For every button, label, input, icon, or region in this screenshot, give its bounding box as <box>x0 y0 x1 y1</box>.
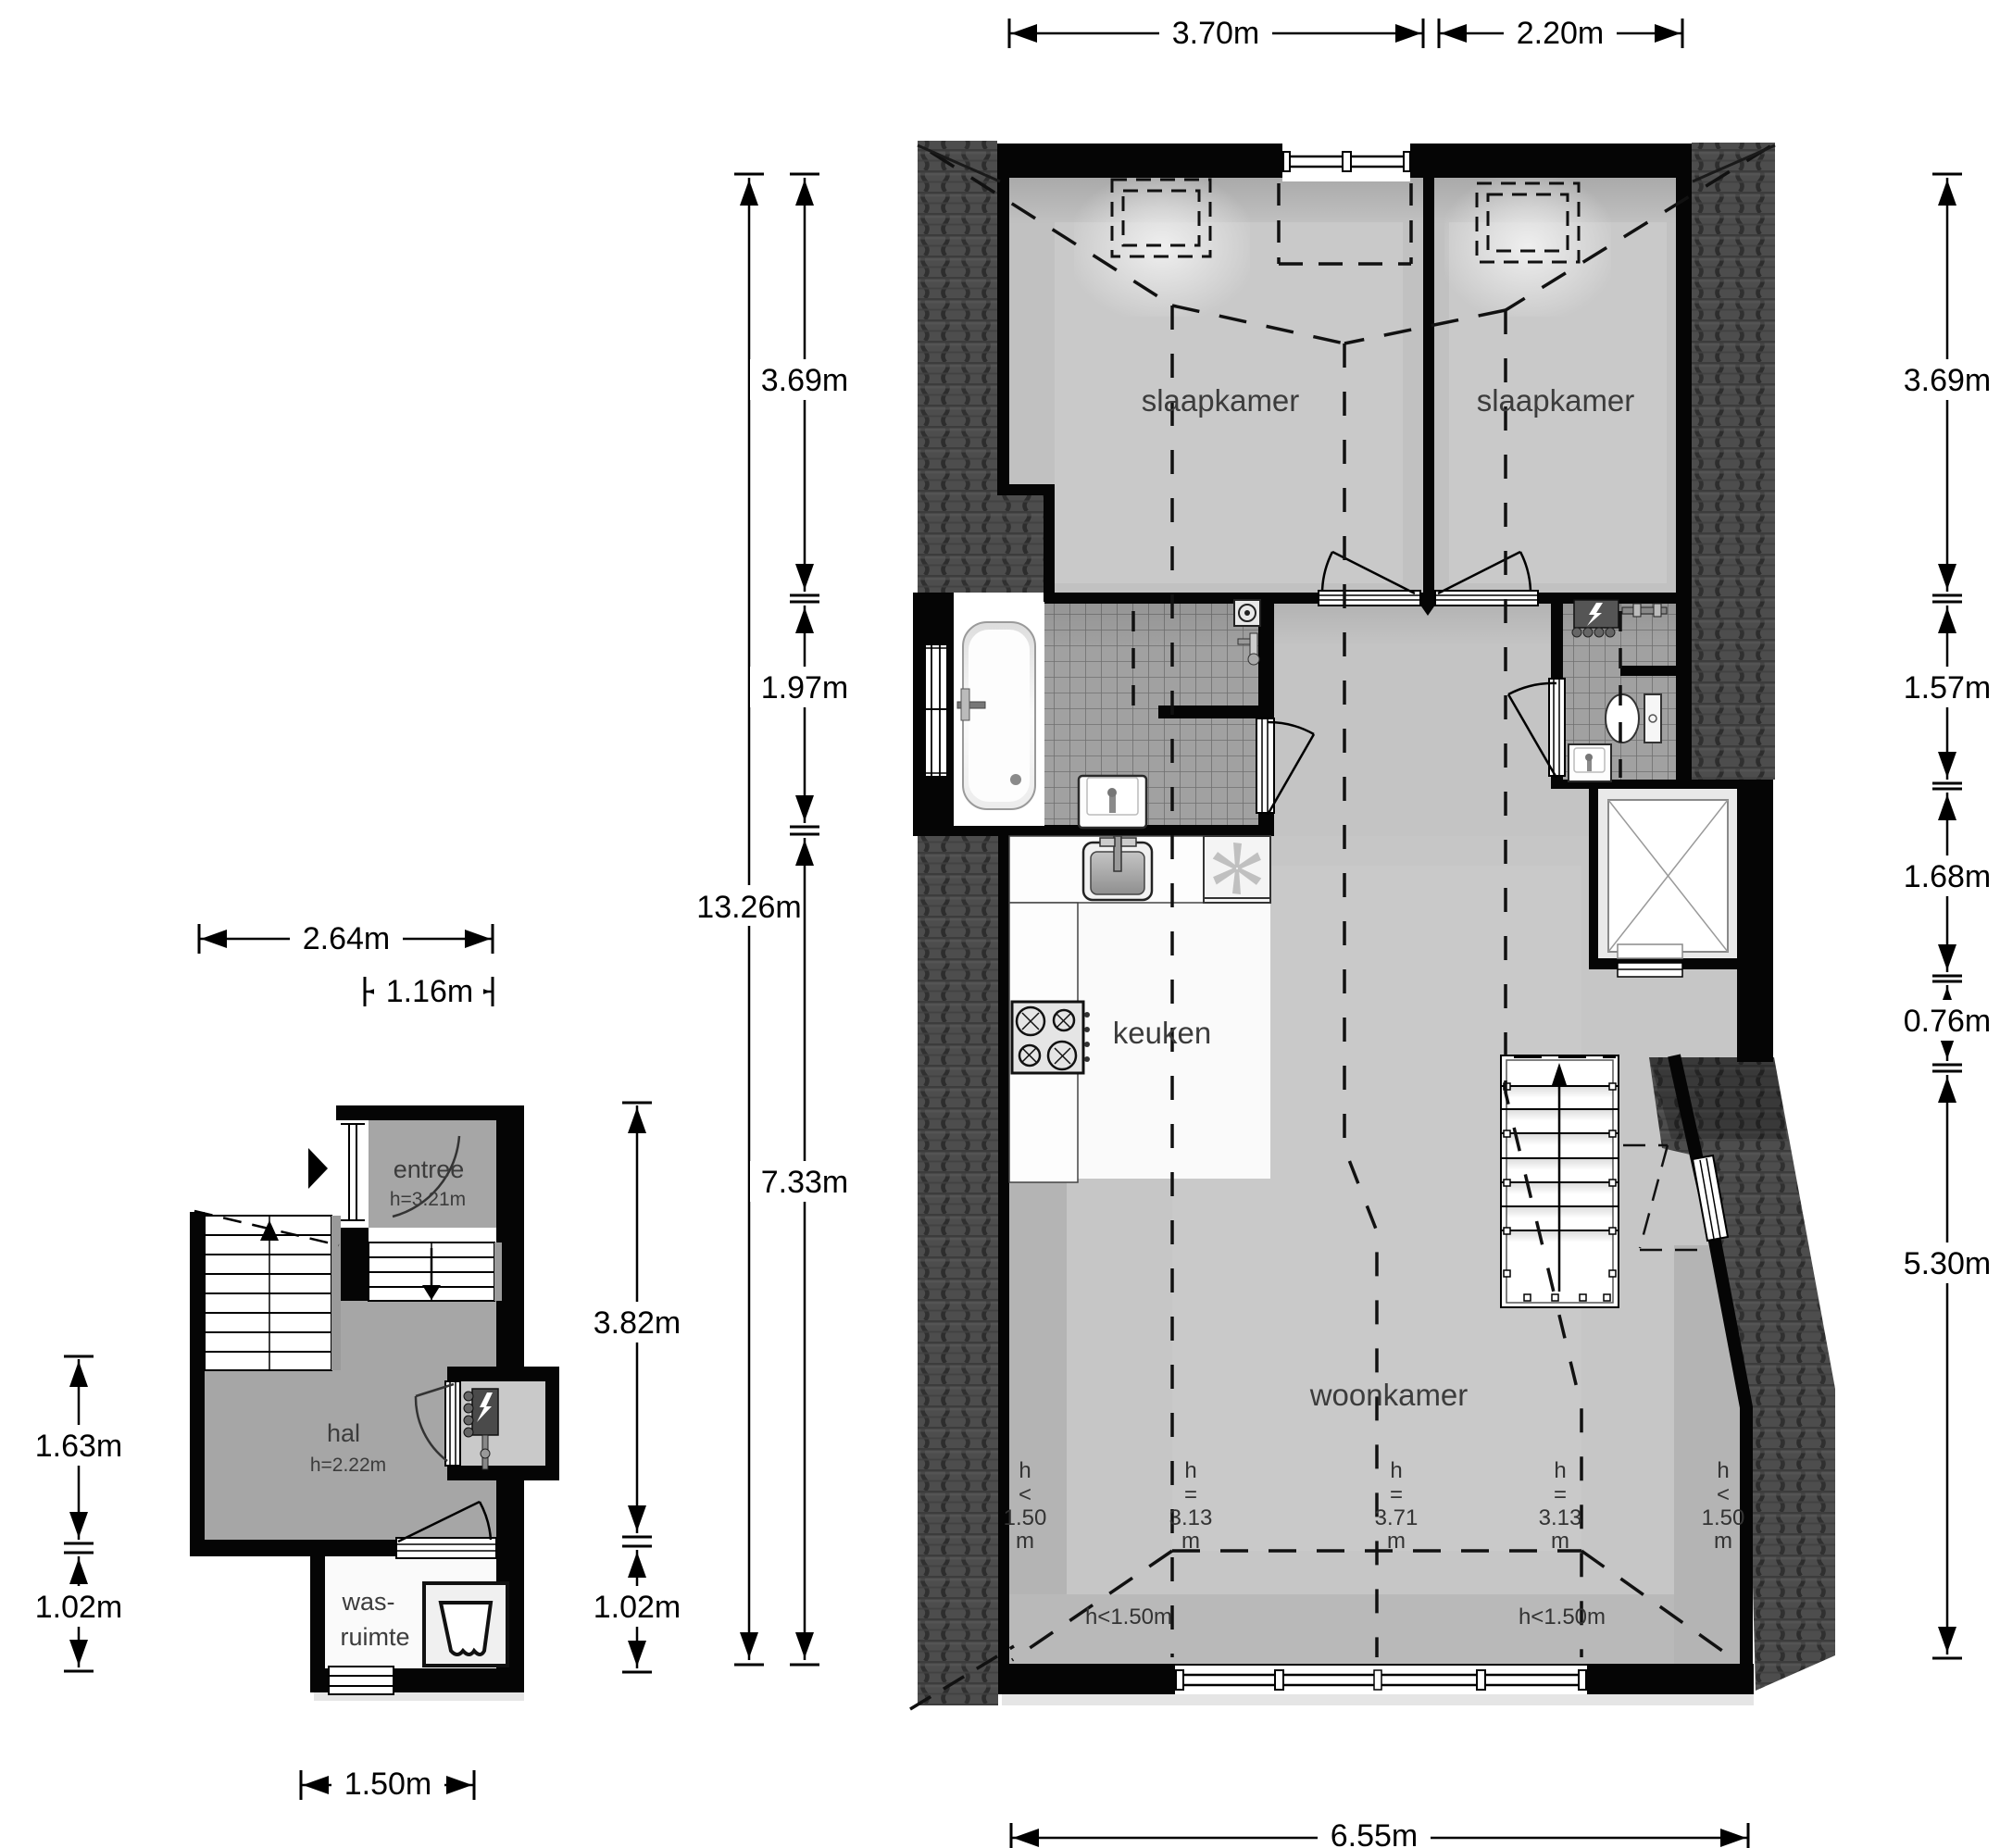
svg-text:5.30m: 5.30m <box>1904 1246 1992 1281</box>
svg-text:h: h <box>1019 1458 1031 1483</box>
svg-text:3.82m: 3.82m <box>594 1305 681 1341</box>
svg-text:7.33m: 7.33m <box>761 1165 849 1200</box>
svg-text:2.20m: 2.20m <box>1517 16 1605 51</box>
svg-text:<: < <box>1717 1482 1730 1507</box>
svg-text:m: m <box>1181 1529 1200 1554</box>
svg-text:h<1.50m: h<1.50m <box>1085 1605 1172 1629</box>
svg-text:was-: was- <box>341 1588 394 1616</box>
svg-text:slaapkamer: slaapkamer <box>1142 383 1300 418</box>
svg-text:slaapkamer: slaapkamer <box>1477 383 1635 418</box>
svg-text:3.13: 3.13 <box>1539 1505 1582 1530</box>
svg-text:=: = <box>1554 1482 1567 1507</box>
svg-text:<: < <box>1019 1482 1031 1507</box>
svg-text:1.68m: 1.68m <box>1904 859 1992 894</box>
svg-text:3.13: 3.13 <box>1169 1505 1213 1530</box>
svg-text:h: h <box>1390 1458 1402 1483</box>
svg-text:m: m <box>1551 1529 1569 1554</box>
svg-text:h=2.22m: h=2.22m <box>310 1455 386 1476</box>
svg-text:1.97m: 1.97m <box>761 670 849 705</box>
svg-text:m: m <box>1714 1529 1732 1554</box>
svg-text:h: h <box>1717 1458 1729 1483</box>
svg-text:h=3.21m: h=3.21m <box>390 1189 466 1210</box>
svg-text:=: = <box>1390 1482 1403 1507</box>
svg-text:1.63m: 1.63m <box>35 1429 123 1464</box>
svg-text:0.76m: 0.76m <box>1904 1004 1992 1039</box>
svg-text:1.50: 1.50 <box>1004 1505 1047 1530</box>
svg-text:h: h <box>1554 1458 1566 1483</box>
svg-text:1.50: 1.50 <box>1702 1505 1745 1530</box>
svg-text:ruimte: ruimte <box>340 1623 409 1651</box>
svg-text:6.55m: 6.55m <box>1331 1818 1419 1848</box>
svg-text:1.02m: 1.02m <box>35 1590 123 1625</box>
svg-text:3.69m: 3.69m <box>761 363 849 398</box>
svg-text:keuken: keuken <box>1113 1016 1211 1050</box>
svg-text:1.50m: 1.50m <box>344 1767 432 1802</box>
svg-text:m: m <box>1016 1529 1034 1554</box>
svg-text:1.16m: 1.16m <box>386 974 474 1009</box>
svg-text:h: h <box>1184 1458 1196 1483</box>
svg-text:3.71: 3.71 <box>1375 1505 1419 1530</box>
svg-text:3.70m: 3.70m <box>1172 16 1260 51</box>
svg-text:3.69m: 3.69m <box>1904 363 1992 398</box>
svg-text:2.64m: 2.64m <box>303 921 391 956</box>
svg-text:h<1.50m: h<1.50m <box>1519 1605 1606 1629</box>
svg-text:hal: hal <box>327 1419 360 1447</box>
svg-text:woonkamer: woonkamer <box>1309 1378 1469 1412</box>
svg-text:13.26m: 13.26m <box>696 890 801 925</box>
svg-text:m: m <box>1387 1529 1406 1554</box>
svg-text:entree: entree <box>394 1155 465 1183</box>
svg-text:=: = <box>1184 1482 1197 1507</box>
svg-text:1.02m: 1.02m <box>594 1590 681 1625</box>
svg-text:1.57m: 1.57m <box>1904 670 1992 705</box>
